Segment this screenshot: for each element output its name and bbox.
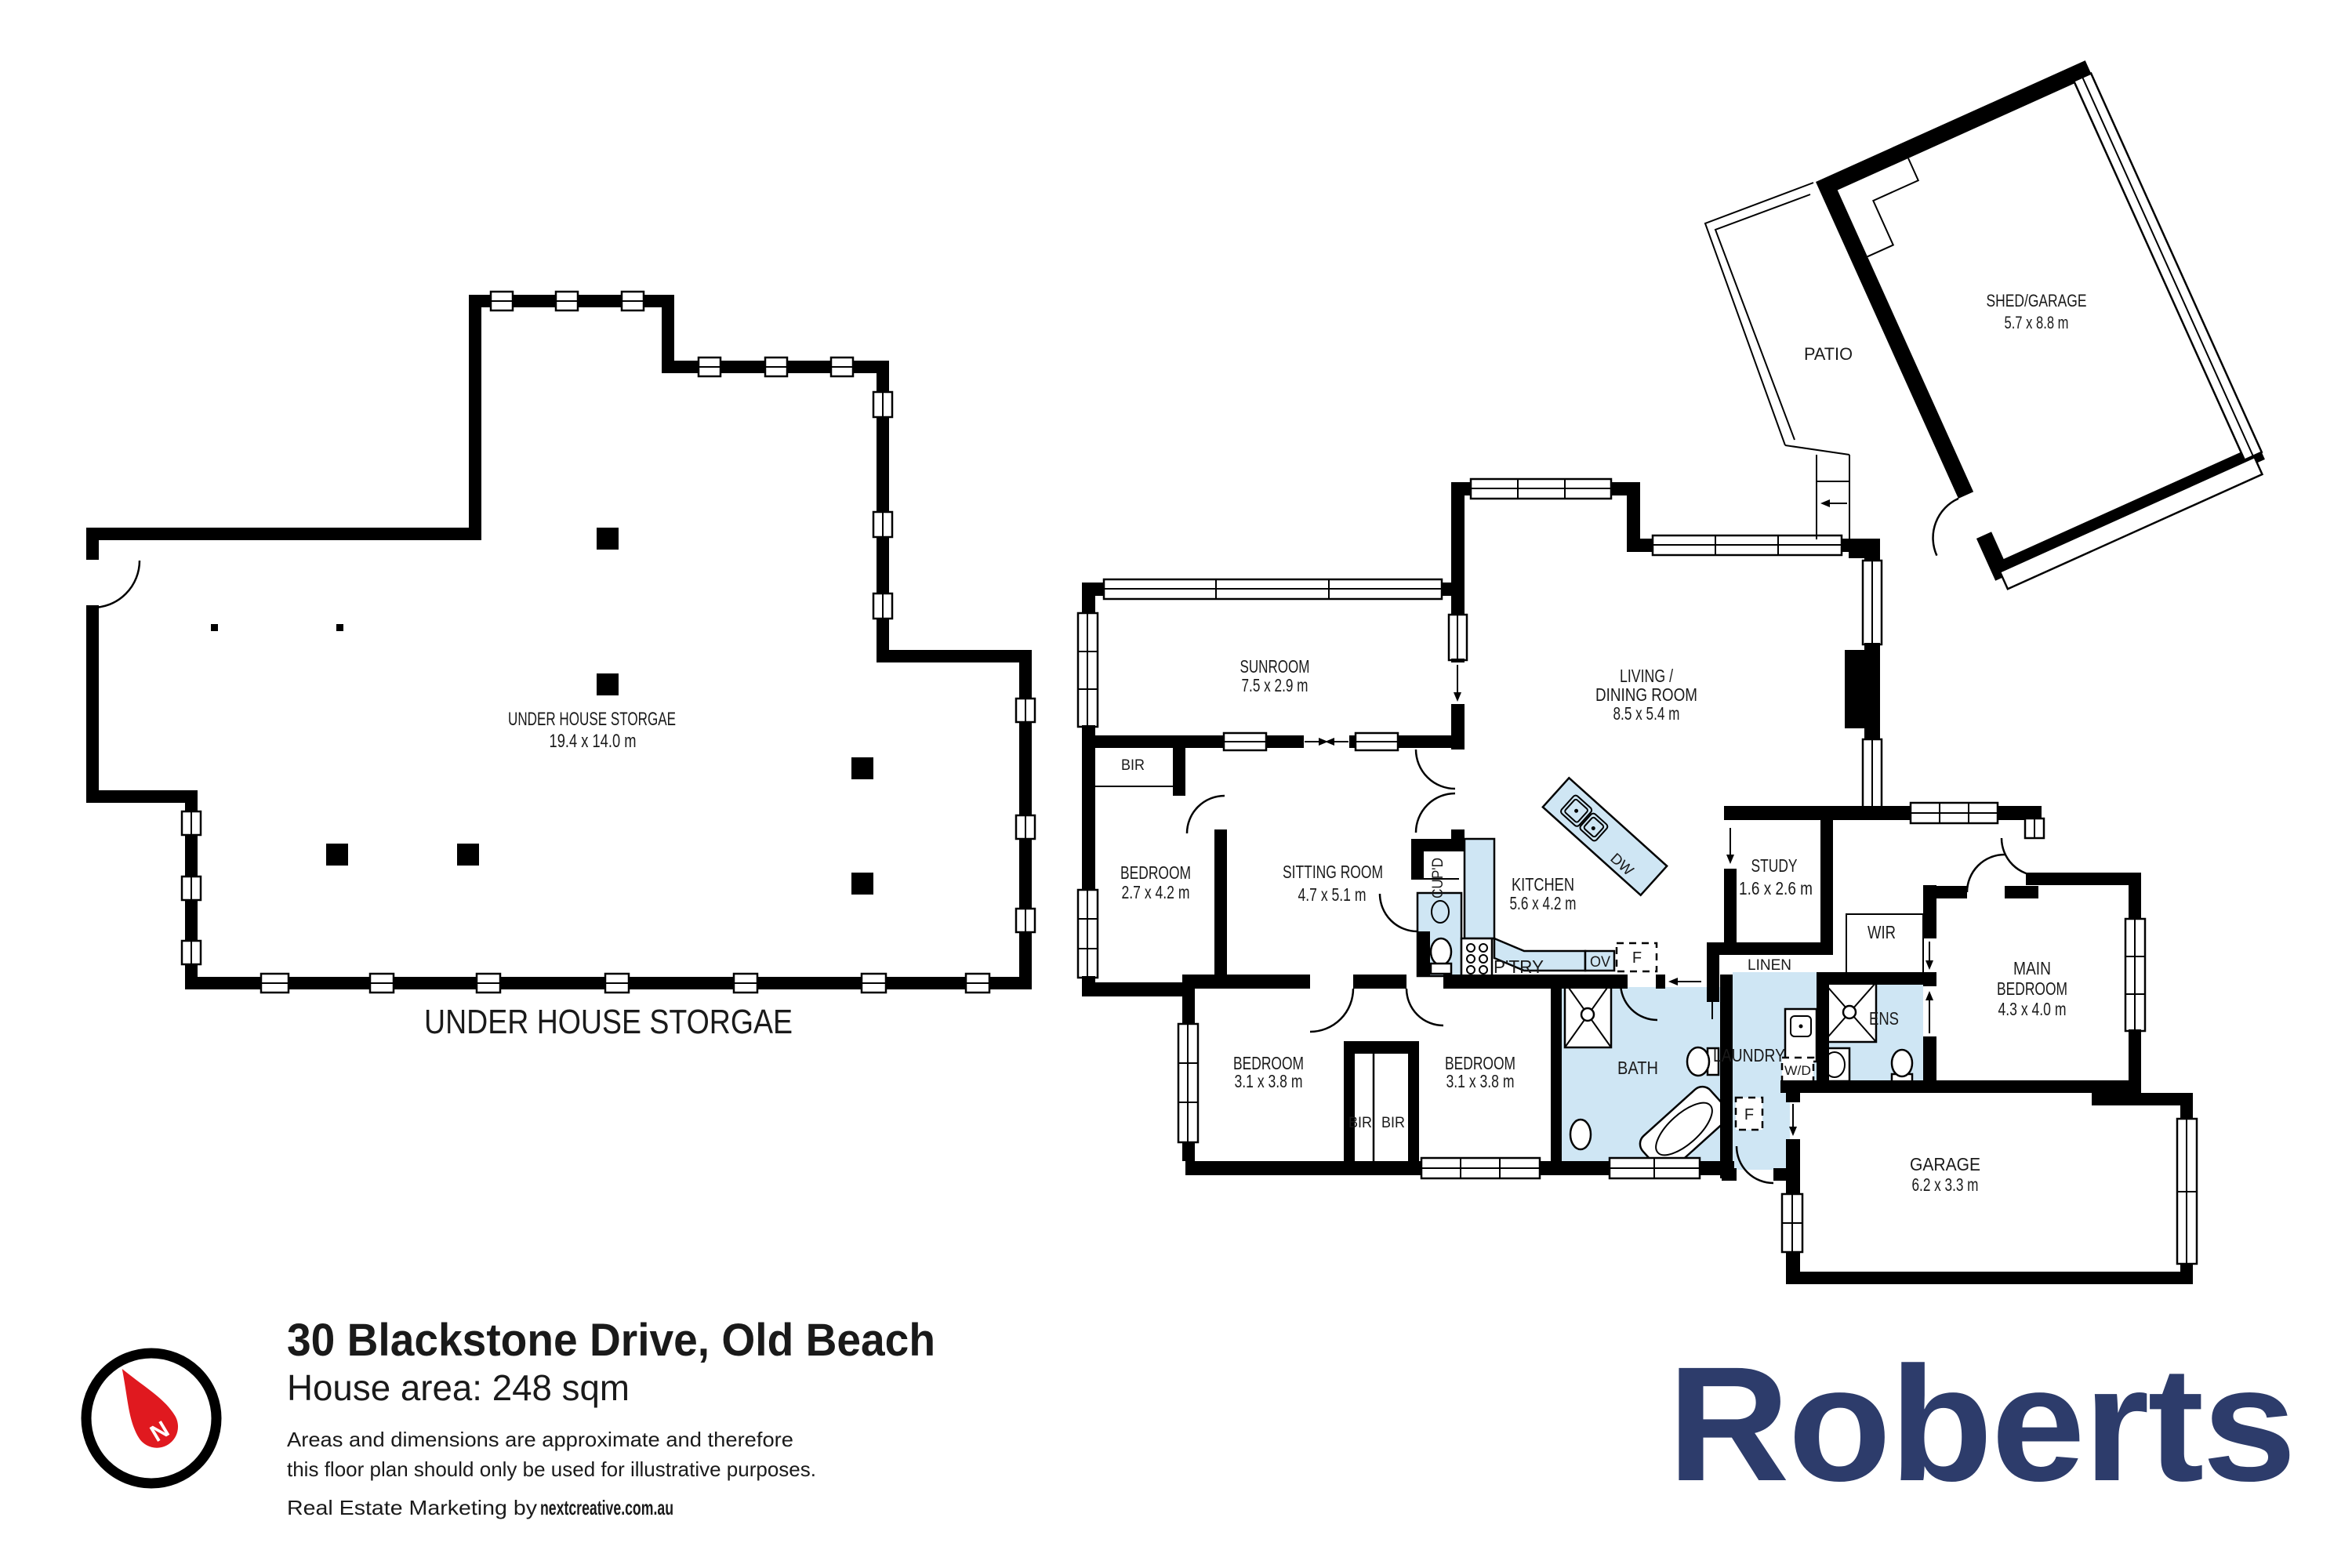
svg-text:2.7 x 4.2 m: 2.7 x 4.2 m	[1122, 882, 1190, 902]
svg-text:Areas and dimensions are appro: Areas and dimensions are approximate and…	[287, 1428, 793, 1451]
svg-text:nextcreative.com.au: nextcreative.com.au	[540, 1496, 673, 1519]
svg-text:MAIN: MAIN	[2013, 958, 2051, 978]
svg-text:STUDY: STUDY	[1751, 855, 1798, 876]
svg-text:OV: OV	[1590, 954, 1610, 971]
svg-text:LINEN: LINEN	[1748, 957, 1791, 974]
svg-text:GARAGE: GARAGE	[1910, 1154, 1980, 1174]
svg-text:F: F	[1744, 1106, 1754, 1123]
svg-text:P'TRY: P'TRY	[1494, 956, 1544, 977]
svg-text:SUNROOM: SUNROOM	[1240, 656, 1310, 677]
svg-text:BATH: BATH	[1617, 1058, 1658, 1078]
svg-text:3.1 x 3.8 m: 3.1 x 3.8 m	[1235, 1071, 1303, 1091]
svg-text:6.2 x 3.3 m: 6.2 x 3.3 m	[1912, 1174, 1979, 1195]
svg-text:BEDROOM: BEDROOM	[1120, 862, 1191, 883]
svg-text:BIR: BIR	[1121, 757, 1145, 774]
svg-text:BIR: BIR	[1348, 1115, 1372, 1131]
svg-text:4.3 x 4.0 m: 4.3 x 4.0 m	[1998, 999, 2067, 1019]
svg-text:ENS: ENS	[1869, 1008, 1899, 1029]
svg-text:5.6 x 4.2 m: 5.6 x 4.2 m	[1510, 893, 1577, 913]
svg-text:SITTING ROOM: SITTING ROOM	[1283, 862, 1383, 882]
svg-text:1.6 x 2.6 m: 1.6 x 2.6 m	[1739, 878, 1813, 898]
svg-text:LIVING /: LIVING /	[1620, 666, 1673, 686]
svg-text:LAUNDRY: LAUNDRY	[1713, 1045, 1785, 1065]
svg-text:BEDROOM: BEDROOM	[1997, 978, 2067, 999]
svg-text:7.5 x 2.9 m: 7.5 x 2.9 m	[1242, 675, 1308, 695]
svg-text:Real Estate Marketing by: Real Estate Marketing by	[287, 1496, 537, 1519]
svg-text:3.1 x 3.8 m: 3.1 x 3.8 m	[1446, 1071, 1515, 1091]
svg-text:5.7 x 8.8 m: 5.7 x 8.8 m	[2004, 313, 2068, 332]
svg-text:4.7 x 5.1 m: 4.7 x 5.1 m	[1298, 884, 1367, 905]
svg-text:UNDER HOUSE STORGAE: UNDER HOUSE STORGAE	[424, 1003, 793, 1041]
svg-text:KITCHEN: KITCHEN	[1512, 874, 1574, 895]
svg-text:this floor plan should only be: this floor plan should only be used for …	[287, 1457, 816, 1481]
svg-text:19.4 x 14.0 m: 19.4 x 14.0 m	[550, 731, 637, 752]
svg-text:CUP'D: CUP'D	[1430, 858, 1446, 898]
svg-text:SHED/GARAGE: SHED/GARAGE	[1986, 291, 2086, 310]
svg-text:30 Blackstone Drive, Old Beach: 30 Blackstone Drive, Old Beach	[287, 1315, 935, 1366]
svg-text:House area: 248 sqm: House area: 248 sqm	[287, 1367, 630, 1408]
svg-text:UNDER HOUSE STORGAE: UNDER HOUSE STORGAE	[508, 709, 676, 730]
svg-text:DINING ROOM: DINING ROOM	[1595, 684, 1697, 705]
svg-text:8.5 x 5.4 m: 8.5 x 5.4 m	[1613, 703, 1680, 724]
svg-text:F: F	[1632, 949, 1642, 967]
svg-text:WIR: WIR	[1867, 922, 1896, 942]
svg-text:BIR: BIR	[1381, 1115, 1405, 1131]
svg-text:W/D: W/D	[1784, 1063, 1811, 1078]
svg-text:PATIO: PATIO	[1804, 344, 1853, 364]
svg-text:Roberts: Roberts	[1668, 1334, 2295, 1515]
